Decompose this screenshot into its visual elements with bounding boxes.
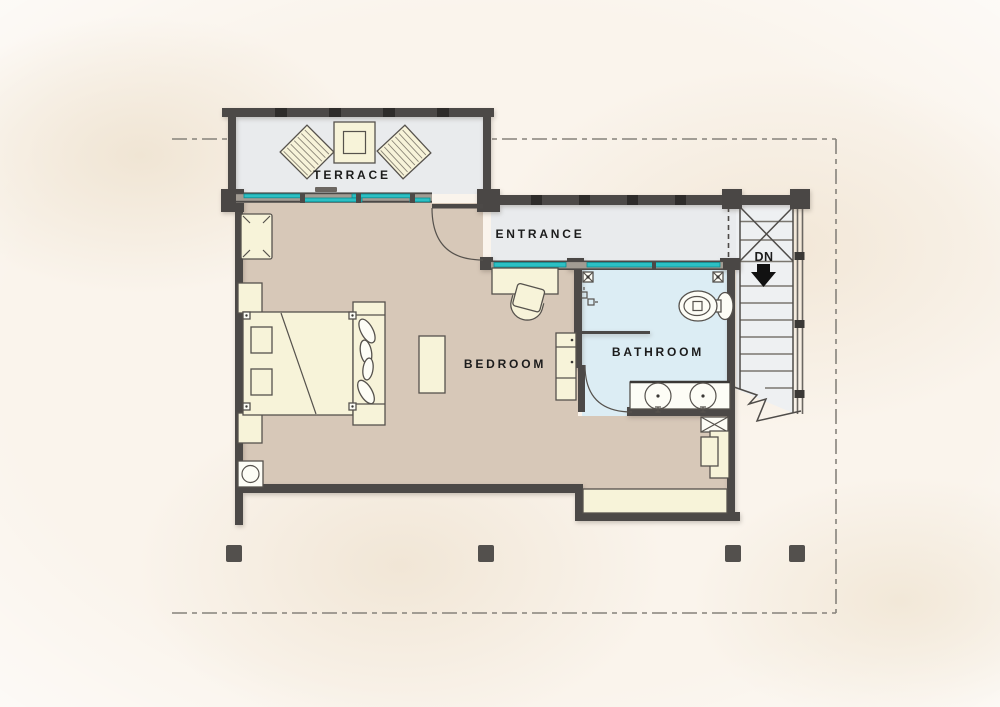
wall-mullion-tick	[531, 195, 542, 205]
glass-panel	[494, 263, 566, 268]
entrance-door-leaf	[432, 204, 483, 209]
shaft-box	[701, 417, 728, 432]
toilet-bowl	[679, 291, 717, 321]
wall-mullion-tick	[383, 108, 395, 117]
terrace-table	[334, 122, 375, 163]
door-handle-icon	[315, 187, 337, 192]
built-in-bench	[583, 489, 727, 513]
railing-post-mark	[795, 252, 805, 260]
glazing-mullion	[300, 193, 305, 203]
floor-plan-page: DN	[0, 0, 1000, 707]
bathroom-label: BATHROOM	[612, 345, 704, 359]
wall-mullion-tick	[675, 195, 686, 205]
site-columns	[226, 545, 805, 562]
wall-mullion-tick	[579, 195, 590, 205]
wall-mullion-tick	[329, 108, 341, 117]
shower-partition-wall	[582, 331, 650, 334]
stair-post	[722, 189, 742, 209]
sliding-glass-panel	[302, 198, 362, 202]
closet-knob	[571, 361, 574, 364]
column-symbol	[713, 272, 723, 282]
stair-post	[790, 189, 810, 209]
glazed-wall-edge	[491, 261, 723, 263]
closet-shelf	[556, 333, 576, 400]
wall-mullion-tick	[437, 108, 449, 117]
bathroom-door-leaf	[578, 365, 585, 412]
toilet-icon	[679, 291, 733, 321]
terrace-right-wall	[483, 108, 491, 202]
corner-post	[477, 189, 500, 212]
column-marker	[478, 545, 494, 562]
terrace-label: TERRACE	[313, 168, 391, 182]
bedroom-label: BEDROOM	[464, 357, 546, 371]
glazing-mullion	[356, 193, 361, 203]
bench	[419, 336, 445, 393]
nightstand-top	[238, 283, 262, 313]
dresser-drawer	[701, 437, 718, 466]
wall-mullion-tick	[275, 108, 287, 117]
nightstand-bottom	[238, 413, 262, 443]
column-marker	[789, 545, 805, 562]
column-marker	[226, 545, 242, 562]
bed-cushion	[251, 327, 272, 353]
closet-body	[556, 333, 576, 400]
entrance-label: ENTRANCE	[495, 227, 584, 241]
column-marker	[725, 545, 741, 562]
terrace-top-wall	[222, 108, 494, 117]
terrace-left-wall	[228, 108, 236, 196]
wall-mullion-tick	[627, 195, 638, 205]
bedroom-bottom-wall	[235, 484, 583, 493]
glazing-mullion	[410, 193, 415, 203]
stairs-down-label: DN	[754, 250, 773, 264]
closet-knob	[571, 339, 574, 342]
railing-post-mark	[795, 320, 805, 328]
railing-post-mark	[795, 390, 805, 398]
sink-drain	[656, 394, 659, 397]
column-symbol	[583, 272, 593, 282]
stair-railing	[798, 206, 803, 414]
floor-plan-drawing: DN	[0, 0, 1000, 707]
bed	[243, 302, 385, 425]
glazing-mullion	[652, 261, 656, 270]
sliding-glass-panel	[244, 194, 304, 198]
armchair	[241, 214, 272, 259]
vanity	[630, 382, 730, 412]
bed-cushion	[251, 369, 272, 395]
stool	[238, 461, 263, 487]
sink-drain	[701, 394, 704, 397]
